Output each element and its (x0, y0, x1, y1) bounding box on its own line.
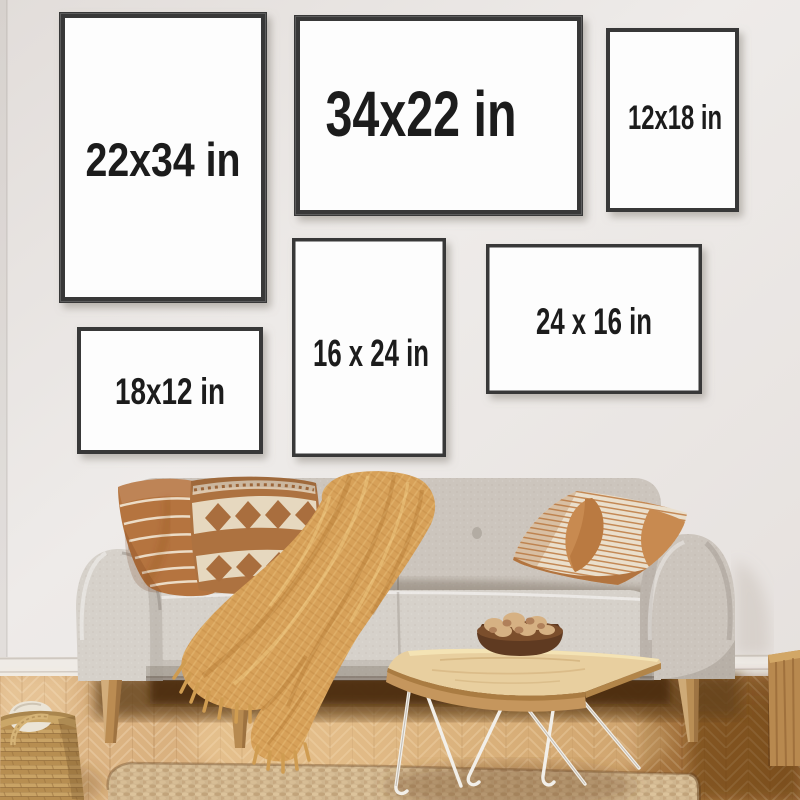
svg-text:12x18 in: 12x18 in (628, 99, 722, 137)
svg-text:24 x 16 in: 24 x 16 in (536, 301, 652, 342)
svg-text:34x22 in: 34x22 in (326, 78, 517, 150)
svg-text:18x12 in: 18x12 in (115, 371, 225, 412)
svg-text:22x34 in: 22x34 in (86, 133, 241, 186)
svg-text:16 x 24 in: 16 x 24 in (313, 333, 429, 375)
